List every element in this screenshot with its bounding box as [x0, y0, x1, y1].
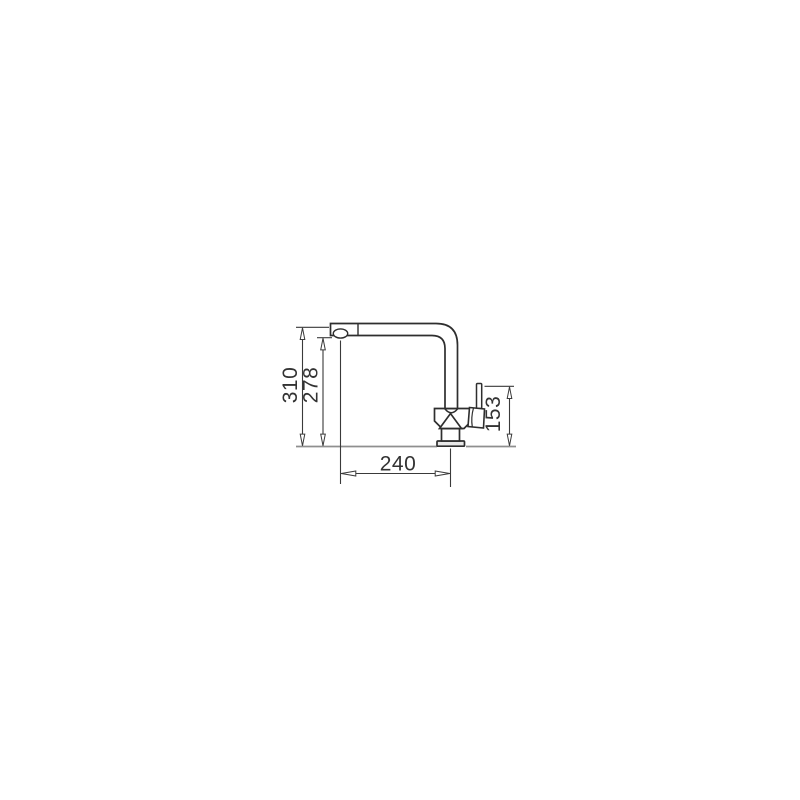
faucet-base-column: [442, 429, 460, 442]
dimension-label-153: 153: [482, 396, 505, 433]
arrow-right-icon: [435, 471, 450, 476]
arrow-down-icon: [321, 434, 326, 446]
faucet-outline: [331, 324, 485, 447]
dimension-spout-underside-height: 278: [300, 338, 333, 446]
technical-drawing-page: 310 278 153 240: [0, 0, 800, 800]
faucet-handle-lever: [477, 384, 482, 409]
faucet-spout: [331, 324, 458, 409]
arrow-up-icon: [300, 328, 305, 340]
dimension-label-278: 278: [300, 367, 323, 404]
arrow-up-icon: [507, 387, 512, 399]
arrow-down-icon: [300, 434, 305, 446]
arrow-up-icon: [321, 338, 326, 350]
dimension-handle-height: 153: [482, 386, 514, 446]
arrow-down-icon: [507, 434, 512, 446]
faucet-aerator-outlet: [333, 329, 347, 338]
faucet-dimension-diagram: 310 278 153 240: [0, 0, 800, 800]
arrow-left-icon: [341, 471, 356, 476]
dimension-label-240: 240: [380, 453, 417, 476]
